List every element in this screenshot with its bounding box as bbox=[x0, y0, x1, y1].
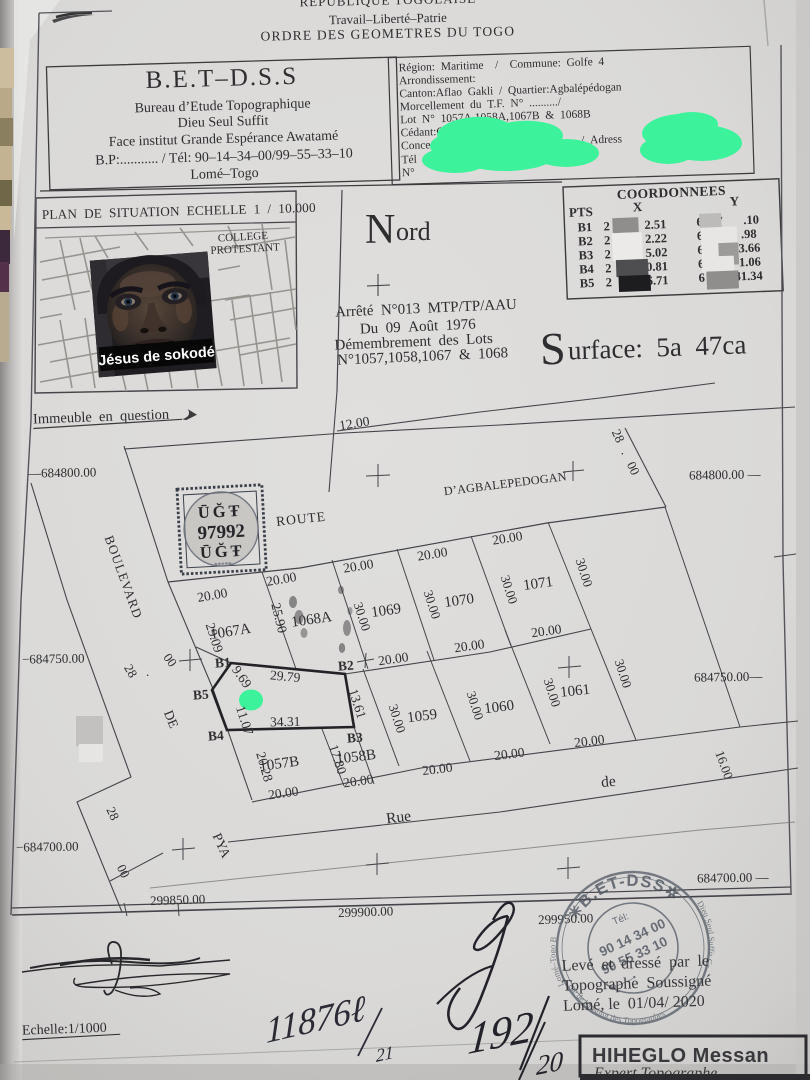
svg-text:B4: B4 bbox=[579, 262, 595, 277]
svg-text:Rue: Rue bbox=[385, 808, 412, 828]
svg-text:N°: N° bbox=[402, 167, 416, 179]
svg-text:299900.00: 299900.00 bbox=[338, 903, 394, 920]
svg-text:2: 2 bbox=[605, 275, 612, 289]
svg-text:B2: B2 bbox=[578, 234, 593, 249]
svg-text:B5: B5 bbox=[192, 687, 209, 703]
svg-text:1061: 1061 bbox=[559, 682, 591, 701]
svg-text:299850.00: 299850.00 bbox=[150, 891, 206, 908]
svg-text:.: . bbox=[146, 664, 149, 679]
svg-text:—684800.00: —684800.00 bbox=[27, 464, 97, 480]
svg-text:Arrondissement:: Arrondissement: bbox=[399, 73, 476, 87]
svg-text:−684700.00: −684700.00 bbox=[16, 839, 79, 855]
svg-text:S: S bbox=[539, 323, 566, 375]
svg-text:N: N bbox=[365, 207, 395, 253]
svg-text:Dieu Seul Suffit: Dieu Seul Suffit bbox=[178, 114, 269, 132]
svg-text:−684750.00: −684750.00 bbox=[22, 651, 85, 667]
svg-text:de: de bbox=[600, 773, 616, 791]
svg-text:6: 6 bbox=[698, 271, 705, 285]
svg-text:ŪĞŦ: ŪĞŦ bbox=[197, 501, 243, 522]
svg-text:Tél: Tél bbox=[401, 154, 417, 166]
svg-text:3.66: 3.66 bbox=[738, 241, 760, 256]
svg-text:B.E.T–D.S.S: B.E.T–D.S.S bbox=[145, 63, 298, 94]
svg-text:HIHEGLO Messan: HIHEGLO Messan bbox=[592, 1045, 769, 1067]
svg-text:B2: B2 bbox=[337, 658, 354, 674]
svg-text:B4: B4 bbox=[207, 728, 224, 744]
svg-text:PTS: PTS bbox=[569, 204, 593, 220]
svg-text:2: 2 bbox=[604, 247, 611, 261]
svg-text:B3: B3 bbox=[578, 248, 593, 263]
svg-text:2.51: 2.51 bbox=[644, 217, 666, 232]
svg-text:Y: Y bbox=[729, 193, 740, 208]
svg-text:2.22: 2.22 bbox=[645, 231, 667, 246]
svg-text:0.81: 0.81 bbox=[646, 259, 668, 274]
svg-text:21: 21 bbox=[376, 1042, 394, 1066]
svg-text:ord: ord bbox=[396, 217, 431, 246]
svg-text:B5: B5 bbox=[579, 276, 594, 291]
svg-text:B3: B3 bbox=[346, 730, 363, 746]
svg-text:*****: ***** bbox=[214, 560, 232, 569]
svg-text:684800.00 —: 684800.00 — bbox=[689, 466, 762, 482]
svg-text:684700.00 —: 684700.00 — bbox=[697, 869, 770, 885]
svg-text:X: X bbox=[633, 199, 644, 214]
svg-text:20: 20 bbox=[536, 1045, 564, 1080]
svg-text:Lomé–Togo: Lomé–Togo bbox=[190, 166, 259, 183]
svg-text:.98: .98 bbox=[741, 227, 757, 242]
svg-text:.10: .10 bbox=[743, 213, 759, 228]
svg-text:34.31: 34.31 bbox=[270, 714, 301, 730]
svg-text:2: 2 bbox=[604, 233, 611, 247]
svg-text:2: 2 bbox=[603, 219, 610, 233]
svg-text:2: 2 bbox=[605, 261, 612, 275]
svg-text:1.06: 1.06 bbox=[739, 255, 761, 270]
svg-text:B1: B1 bbox=[214, 655, 231, 671]
svg-text:5.02: 5.02 bbox=[645, 245, 667, 260]
svg-text:ŪĞŦ: ŪĞŦ bbox=[199, 541, 245, 562]
svg-text:29.79: 29.79 bbox=[269, 667, 301, 685]
svg-text:urface: 5a 47ca: urface: 5a 47ca bbox=[567, 329, 746, 365]
svg-text:B1: B1 bbox=[577, 220, 592, 235]
svg-text:684750.00—: 684750.00— bbox=[694, 668, 764, 684]
